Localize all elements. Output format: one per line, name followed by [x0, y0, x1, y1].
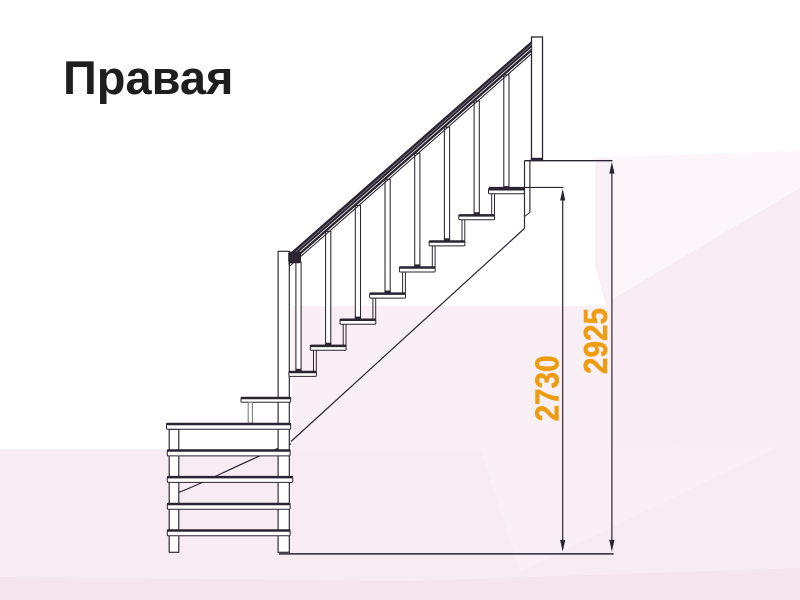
svg-text:2730: 2730: [529, 355, 566, 421]
svg-text:Правая: Правая: [63, 51, 233, 104]
svg-text:2925: 2925: [577, 308, 614, 374]
